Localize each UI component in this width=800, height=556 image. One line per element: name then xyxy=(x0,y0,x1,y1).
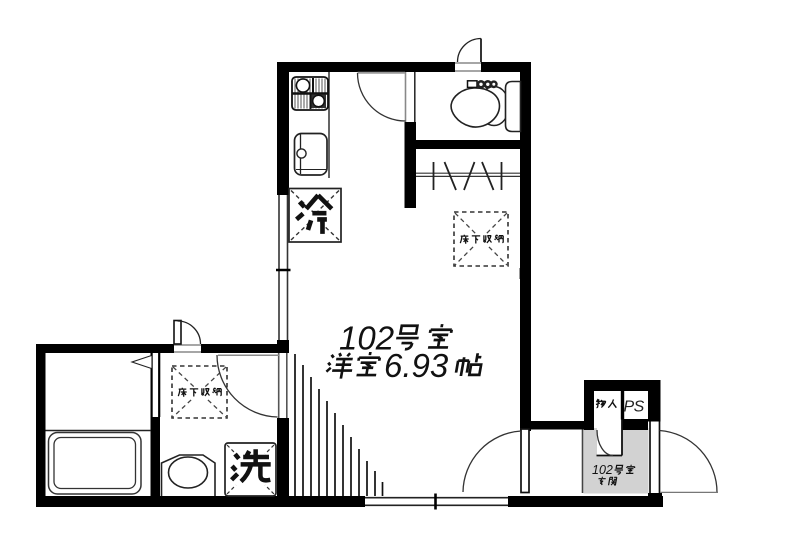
svg-text:102: 102 xyxy=(592,463,613,477)
svg-text:6.93: 6.93 xyxy=(384,347,449,384)
svg-text:PS: PS xyxy=(624,399,645,416)
